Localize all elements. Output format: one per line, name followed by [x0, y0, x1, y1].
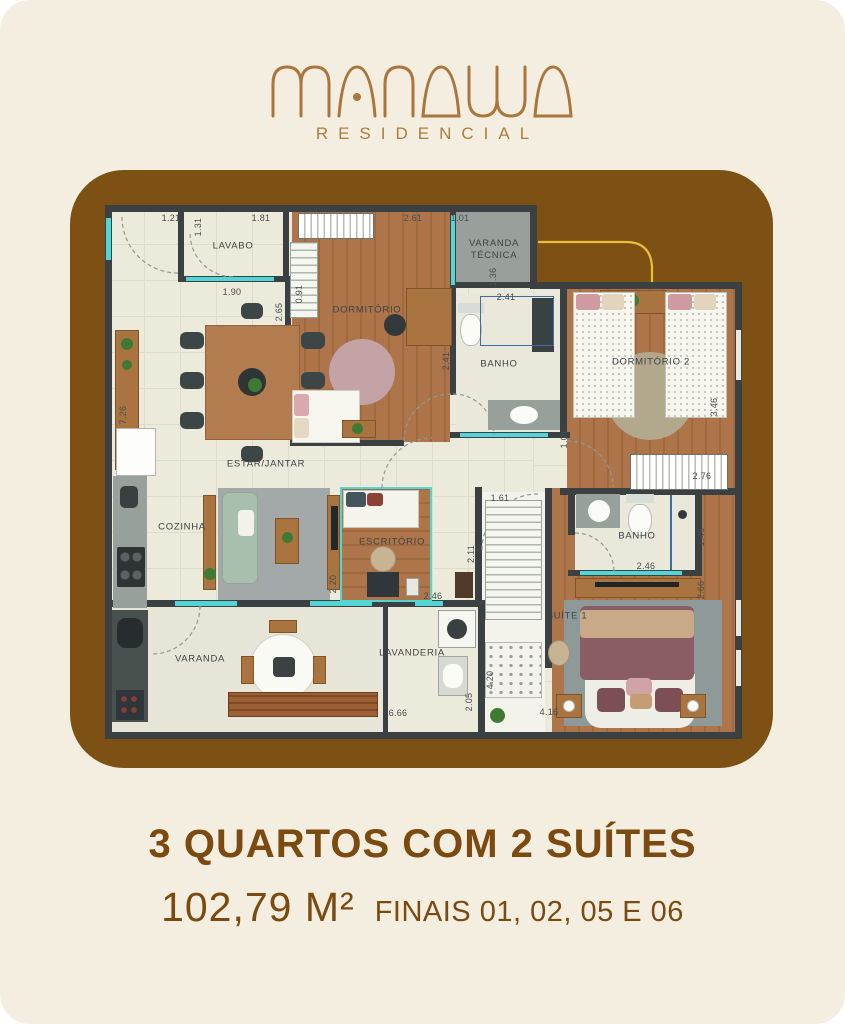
dining-chair [301, 372, 325, 389]
bed-pillow [668, 294, 692, 310]
dining-chair [180, 332, 204, 349]
dimension-label: 1.46 [696, 528, 706, 547]
refrigerator [116, 428, 156, 476]
laundry-basin [443, 664, 463, 688]
balcony-chair [313, 656, 326, 684]
dimension-label: 2.46 [424, 591, 443, 601]
office-monitor [406, 578, 419, 596]
room-label-cozinha: COZINHA [158, 522, 206, 533]
plant-icon [282, 532, 293, 543]
sink-icon [588, 500, 610, 522]
suite-chair [548, 640, 570, 666]
coffee-machine [120, 486, 138, 508]
brand-tagline: RESIDENCIAL [0, 124, 845, 144]
sofa-throw [238, 510, 254, 536]
tv-suite [595, 582, 679, 587]
bed-pillow [294, 418, 309, 438]
plant-icon [248, 378, 262, 392]
bedroom1-shelving [290, 242, 318, 318]
dimension-label: 1.21 [162, 213, 181, 223]
bed-pillow [294, 394, 309, 416]
dimension-label: 2.41 [497, 292, 516, 302]
dimension-label: 2.05 [464, 693, 474, 712]
bedroom1-wardrobe [298, 213, 374, 239]
dimension-label: 2.20 [328, 575, 338, 594]
room-label-banho-suite: BANHO [618, 531, 655, 542]
plant-icon [122, 360, 132, 370]
lamp-icon [687, 700, 699, 712]
dimension-label: 1.36 [488, 268, 498, 287]
dimension-label: 1.01 [559, 430, 569, 449]
suite-tv-console [575, 578, 701, 598]
room-label-dormitorio2: DORMITÓRIO 2 [612, 357, 690, 368]
dimension-label: 2.66 [696, 581, 706, 600]
dimension-label: 2.46 [637, 561, 656, 571]
plant-icon [352, 423, 363, 434]
logo-block: MANAWA RESIDENCIAL [0, 58, 845, 144]
washer-door-icon [447, 619, 467, 639]
room-label-banho1: BANHO [480, 359, 517, 370]
bed-pillow [655, 688, 683, 712]
room-label-suite1: SUÍTE 1 [547, 611, 588, 622]
dimension-label: 1.01 [451, 213, 470, 223]
bed-pillow [630, 694, 652, 709]
hall-cabinet [455, 572, 473, 598]
room-label-varanda-tecnica: VARANDA TÉCNICA [461, 238, 527, 262]
shower-head-icon [678, 510, 687, 519]
sink-icon [510, 406, 538, 424]
dimension-label: 1.81 [252, 213, 271, 223]
stove [117, 547, 145, 587]
bed-pillow [576, 294, 600, 310]
toilet-icon [460, 314, 482, 346]
room-label-estar-jantar: ESTAR/JANTAR [227, 459, 305, 470]
room-label-varanda: VARANDA [175, 654, 225, 665]
room-label-escritorio: ESCRITÓRIO [359, 537, 425, 548]
room-label-dormitorio1: DORMITÓRIO [333, 305, 402, 316]
flyer-page: MANAWA RESIDENCIAL [0, 0, 845, 1024]
dining-chair [180, 372, 204, 389]
dimension-label: 2.11 [466, 545, 476, 563]
room-label-lavabo: LAVABO [213, 241, 254, 252]
unit-numbers: FINAIS 01, 02, 05 E 06 [375, 896, 684, 929]
tv-living [331, 506, 338, 550]
dimension-label: 4.16 [540, 707, 559, 717]
bedroom1-chair [384, 314, 406, 336]
dimension-label: 4.20 [485, 671, 495, 690]
sofa [222, 492, 258, 584]
dimension-label: 1.31 [193, 218, 203, 237]
bed-pillow [602, 294, 624, 310]
bedroom2-closet [630, 454, 728, 490]
plant-icon [121, 338, 133, 350]
dimension-label: 2.76 [693, 471, 712, 481]
plant-icon [204, 568, 216, 580]
bed-pillow [694, 294, 716, 310]
table-tray [273, 657, 295, 677]
wine-cooler [116, 690, 144, 720]
suite-bed-blanket [580, 610, 694, 638]
daybed-pillow [346, 492, 366, 507]
apartment-area: 102,79 M² [161, 884, 355, 931]
toilet-tank [626, 494, 654, 503]
dining-chair [180, 412, 204, 429]
floorplan-card: LAVABO DORMITÓRIO VARANDA TÉCNICA BANHO … [70, 170, 773, 768]
dimension-label: 2.41 [441, 352, 451, 371]
office-desk [367, 572, 399, 597]
balcony-chair [269, 620, 297, 633]
dimension-label: 2.61 [404, 213, 423, 223]
suite-closet-rails [485, 500, 542, 620]
shower-glass [480, 296, 554, 346]
shower-glass [670, 495, 672, 570]
footer-details: 102,79 M² FINAIS 01, 02, 05 E 06 [0, 884, 845, 931]
barbecue-grill [117, 618, 143, 648]
room-label-lavanderia: LAVANDERIA [379, 648, 445, 659]
dimension-label: 1.61 [491, 493, 510, 503]
dining-chair [301, 332, 325, 349]
manawa-logo-icon [263, 58, 583, 120]
dimension-label: 2.65 [274, 303, 284, 322]
bedroom1-desk [406, 288, 452, 346]
dining-chair [241, 303, 263, 319]
lamp-icon [563, 700, 575, 712]
plant-icon [490, 708, 505, 723]
dimension-label: 1.90 [223, 287, 242, 297]
dimension-label: 0.91 [294, 285, 304, 304]
dimension-label: 3.46 [709, 398, 719, 417]
dimension-label: 6.66 [389, 708, 408, 718]
bedroom2-bed [573, 292, 635, 418]
balcony-bench [228, 692, 378, 717]
daybed-pillow [367, 493, 383, 506]
bed-pillow [597, 688, 625, 712]
dimension-label: 7.26 [118, 406, 128, 425]
headline: 3 QUARTOS COM 2 SUÍTES [0, 822, 845, 867]
balcony-chair [241, 656, 254, 684]
office-chair [370, 546, 396, 572]
